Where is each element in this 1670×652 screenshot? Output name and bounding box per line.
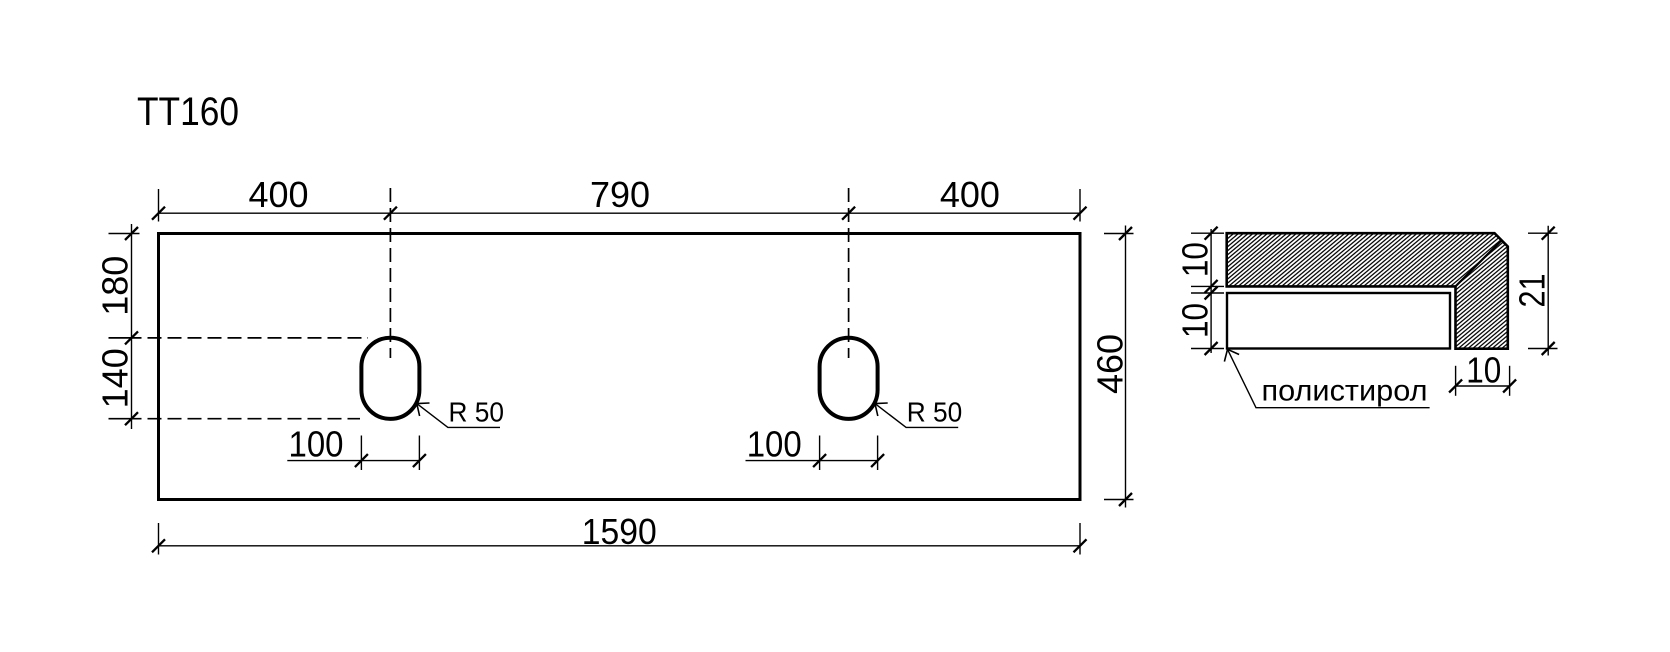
svg-text:10: 10 <box>1466 349 1501 390</box>
svg-text:21: 21 <box>1512 274 1553 308</box>
svg-text:140: 140 <box>94 348 135 408</box>
svg-text:10: 10 <box>1175 242 1216 277</box>
svg-text:100: 100 <box>747 424 802 465</box>
svg-text:180: 180 <box>94 256 135 316</box>
svg-text:TT160: TT160 <box>137 90 239 134</box>
svg-text:R 50: R 50 <box>449 397 505 428</box>
svg-text:100: 100 <box>289 424 344 465</box>
svg-text:10: 10 <box>1175 303 1216 338</box>
svg-text:полистирол: полистирол <box>1262 375 1428 408</box>
svg-text:790: 790 <box>590 174 650 215</box>
svg-text:400: 400 <box>940 174 1000 215</box>
svg-text:1590: 1590 <box>582 511 657 552</box>
svg-text:400: 400 <box>248 174 308 215</box>
svg-text:R 50: R 50 <box>907 397 963 428</box>
svg-text:460: 460 <box>1090 334 1131 394</box>
